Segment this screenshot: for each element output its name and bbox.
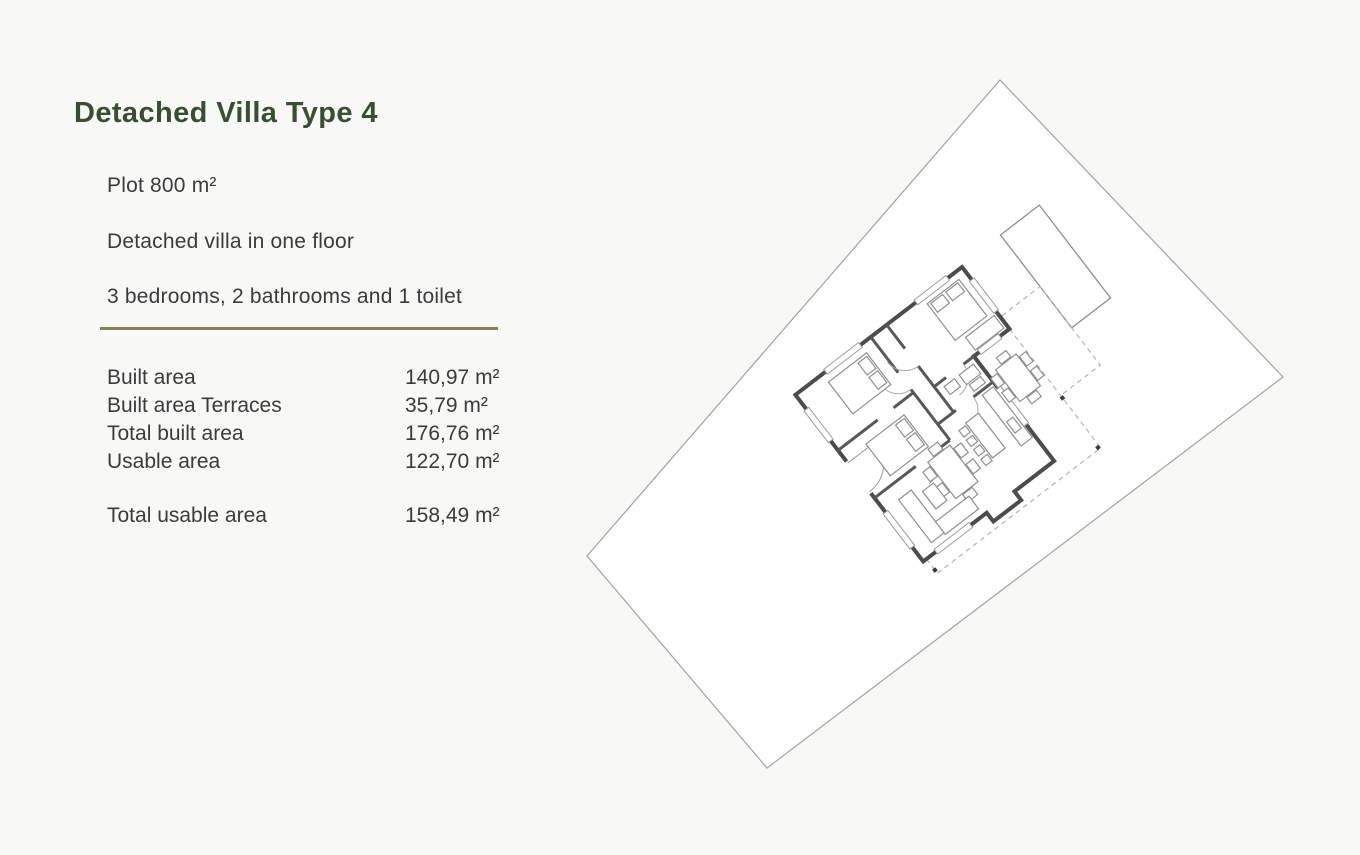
site-plan	[0, 0, 1360, 850]
